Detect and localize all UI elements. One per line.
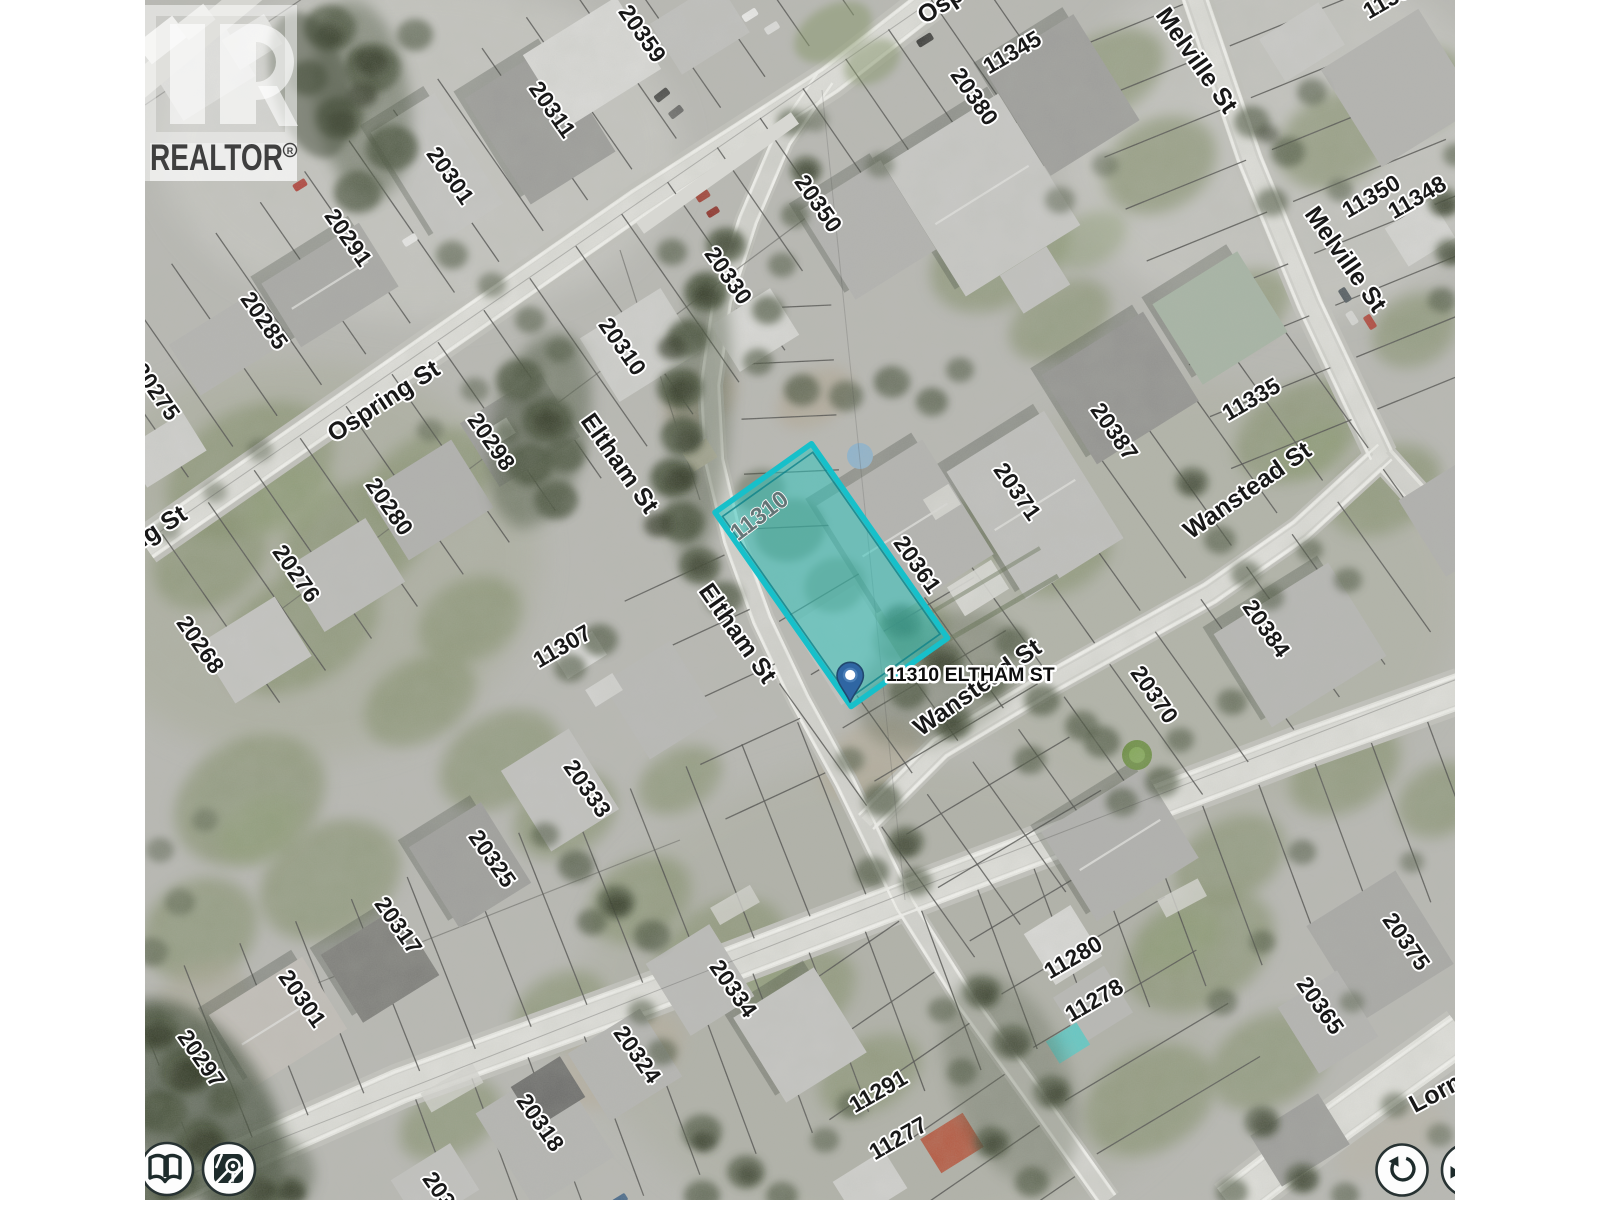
svg-text:REALTOR: REALTOR bbox=[150, 137, 283, 178]
svg-text:R: R bbox=[287, 146, 294, 156]
svg-text:11310 ELTHAM ST: 11310 ELTHAM ST bbox=[886, 664, 1055, 686]
